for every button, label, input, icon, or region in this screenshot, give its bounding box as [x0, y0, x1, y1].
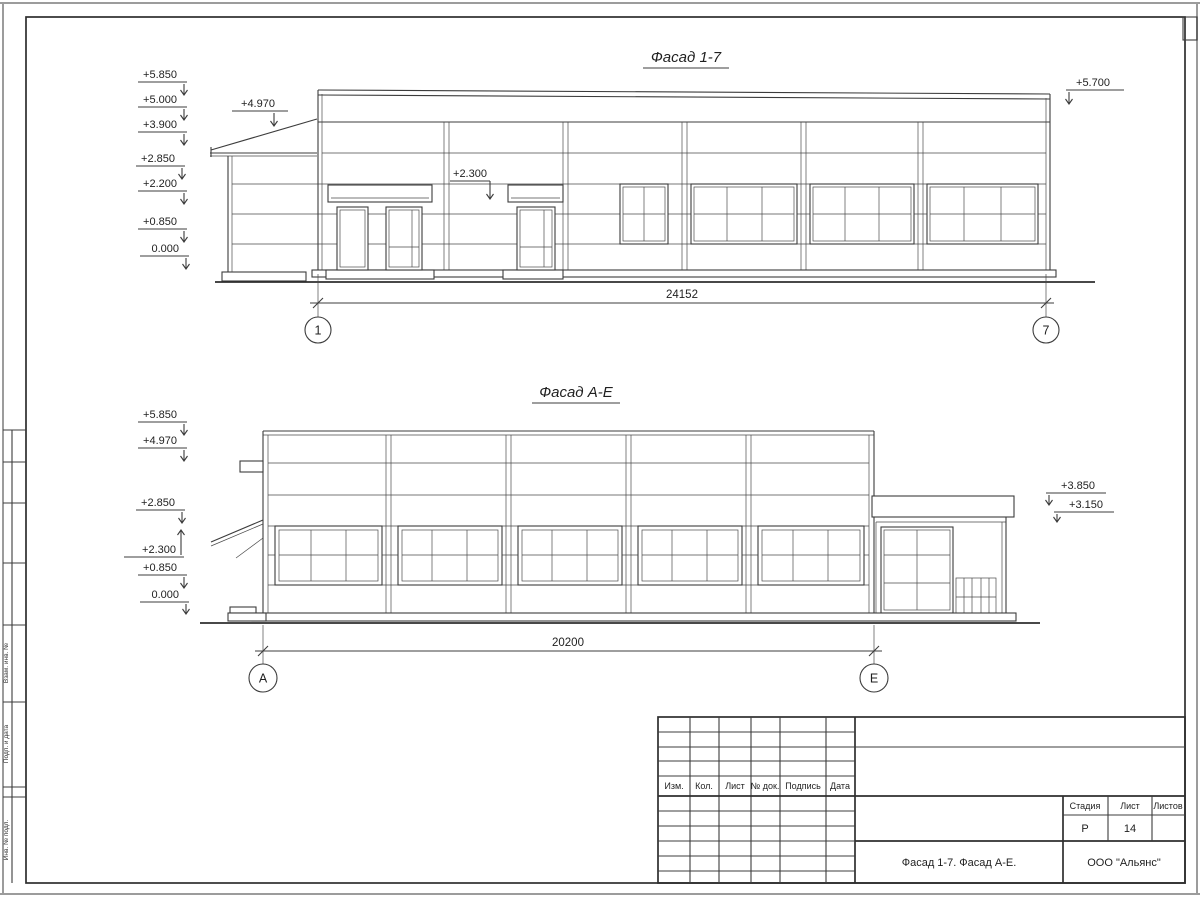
elevation-mark: +5.000 [143, 94, 177, 106]
facade-a-e: Фасад А-Е [124, 384, 1114, 692]
elevation-marks-left: +5.850 +5.000 +3.900 +2.850 +2.200 +0.85… [136, 69, 189, 269]
elevation-mark: +3.850 [1061, 480, 1095, 492]
elevation-mark: +3.900 [143, 119, 177, 131]
title-block: Изм. Кол. Лист № док. Подпись Дата Стади… [658, 717, 1185, 883]
axis-label: А [259, 672, 268, 686]
facade-1-7-title: Фасад 1-7 [651, 49, 722, 66]
axis-label: 7 [1043, 324, 1050, 338]
revision-header: Лист [725, 781, 745, 791]
elevation-mark: +2.850 [141, 153, 175, 165]
stage-value: Р [1081, 823, 1088, 835]
elevation-mark: +4.970 [241, 98, 275, 110]
left-margin-table: Взам. инв. № Подп. и дата Инв. № подл. [3, 430, 26, 883]
elevation-mark: 0.000 [151, 243, 179, 255]
facade-a-e-title: Фасад А-Е [539, 384, 614, 401]
facade-1-7: Фасад 1-7 [136, 49, 1124, 343]
window [620, 184, 668, 244]
margin-label: Инв. № подл. [3, 820, 10, 861]
elevation-mark: 0.000 [151, 589, 179, 601]
revision-header: № док. [751, 781, 780, 791]
beam-stub [240, 461, 263, 472]
step [228, 613, 266, 621]
elevation-mark: +5.850 [143, 409, 177, 421]
drawing-svg: Взам. инв. № Подп. и дата Инв. № подл. Ф… [0, 0, 1200, 900]
signboard [328, 185, 432, 202]
door [386, 207, 422, 270]
awning [211, 520, 263, 558]
doc-title: Фасад 1-7. Фасад А-Е. [902, 857, 1017, 869]
window [398, 526, 502, 585]
revision-header: Изм. [664, 781, 683, 791]
elevation-marks-left: +5.850 +4.970 +2.850 +2.300 +0.850 0.000 [124, 409, 189, 614]
annex-roof-slab [872, 496, 1014, 517]
sheets-label: Листов [1153, 801, 1182, 811]
axis-label: 1 [315, 324, 322, 338]
canopy-mark: +4.970 [232, 98, 288, 126]
signboard [508, 185, 563, 202]
dimension-value: 20200 [552, 637, 584, 649]
porch-step [222, 272, 306, 281]
entrance-step [503, 270, 563, 279]
dimension-a-e: 20200 А Е [249, 625, 888, 692]
porch-canopy [210, 119, 317, 272]
window [758, 526, 864, 585]
annex [872, 496, 1014, 613]
window [927, 184, 1038, 244]
margin-label: Взам. инв. № [3, 643, 10, 683]
sheet-value: 14 [1124, 823, 1136, 835]
drawing-sheet: Взам. инв. № Подп. и дата Инв. № подл. Ф… [0, 0, 1200, 900]
step [230, 607, 256, 613]
axis-label: Е [870, 672, 878, 686]
window [275, 526, 382, 585]
lintel-mark: +2.300 [450, 168, 490, 199]
revision-header: Кол. [695, 781, 713, 791]
revision-header: Дата [830, 781, 850, 791]
window [881, 527, 953, 613]
inner-frame [26, 17, 1185, 883]
stage-label: Стадия [1070, 801, 1101, 811]
elevation-mark: +0.850 [143, 562, 177, 574]
door [337, 207, 368, 270]
entrance-step [326, 270, 434, 279]
elevation-mark: +2.200 [143, 178, 177, 190]
elevation-mark: +2.300 [142, 544, 176, 556]
company-name: ООО "Альянс" [1087, 857, 1161, 869]
dimension-1-7: 24152 1 7 [305, 274, 1059, 343]
elevation-mark: +2.300 [453, 168, 487, 180]
elevation-mark: +5.700 [1076, 77, 1110, 89]
sheet-label: Лист [1120, 801, 1140, 811]
elevation-mark: +3.150 [1069, 499, 1103, 511]
plinth [252, 613, 1016, 621]
elevation-mark: +4.970 [143, 435, 177, 447]
window [518, 526, 622, 585]
margin-label: Подп. и дата [3, 724, 10, 763]
revision-header: Подпись [785, 781, 821, 791]
window [638, 526, 742, 585]
door [517, 207, 555, 270]
elevation-marks-right: +3.850 +3.150 [1046, 480, 1114, 522]
grille [956, 578, 996, 613]
right-mark: +5.700 [1066, 77, 1124, 104]
facade-a-e-building [240, 431, 874, 613]
elevation-mark: +5.850 [143, 69, 177, 81]
window [691, 184, 797, 244]
elevation-mark: +0.850 [143, 216, 177, 228]
dimension-value: 24152 [666, 289, 698, 301]
window [810, 184, 914, 244]
elevation-mark: +2.850 [141, 497, 175, 509]
